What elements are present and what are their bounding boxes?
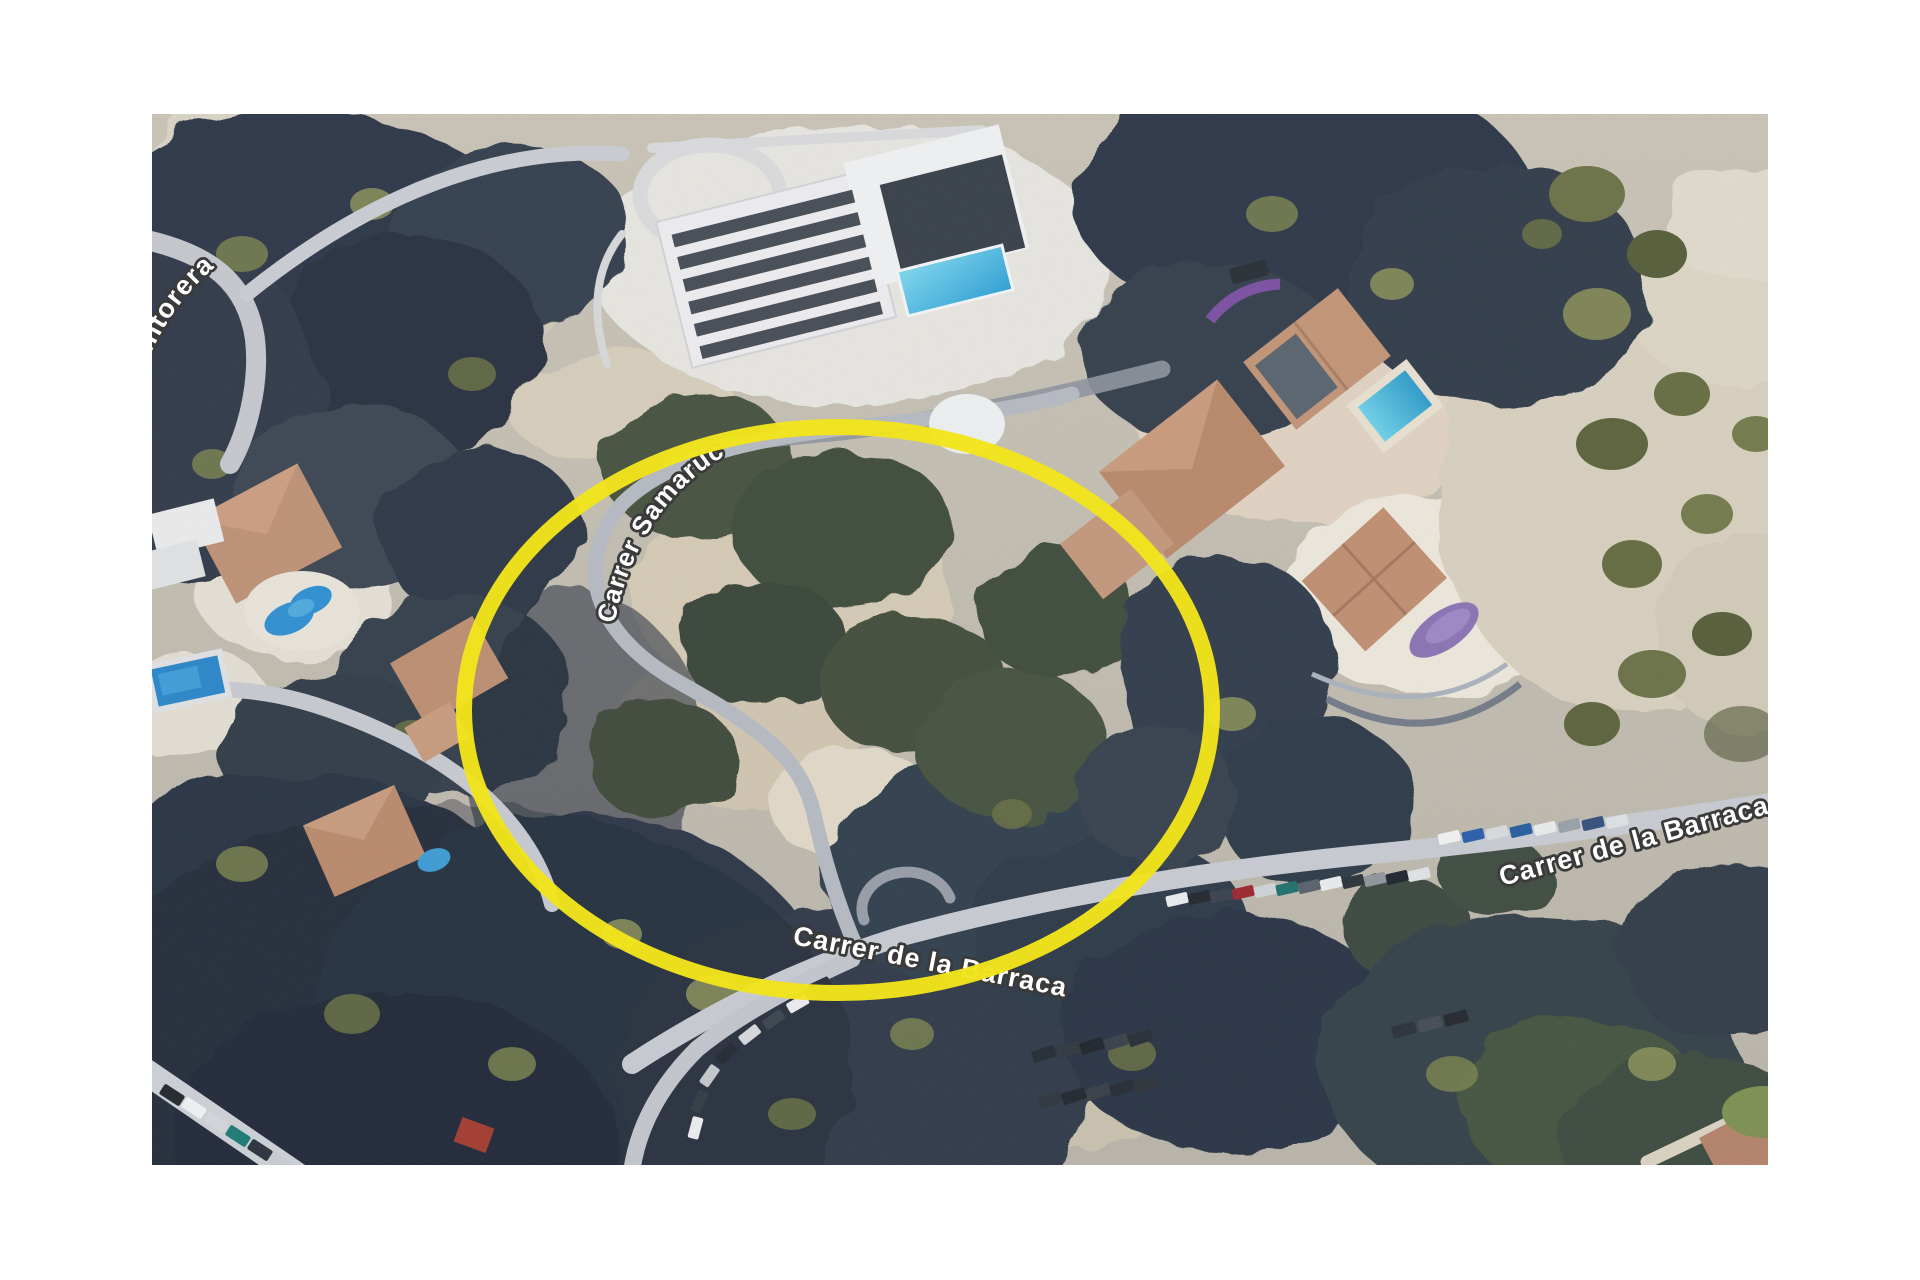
grain-overlay	[152, 114, 1768, 1165]
aerial-imagery: Calle Tintorera Carrer Samaruc Carrer de…	[152, 114, 1768, 1165]
satellite-map[interactable]: Calle Tintorera Carrer Samaruc Carrer de…	[152, 114, 1768, 1165]
